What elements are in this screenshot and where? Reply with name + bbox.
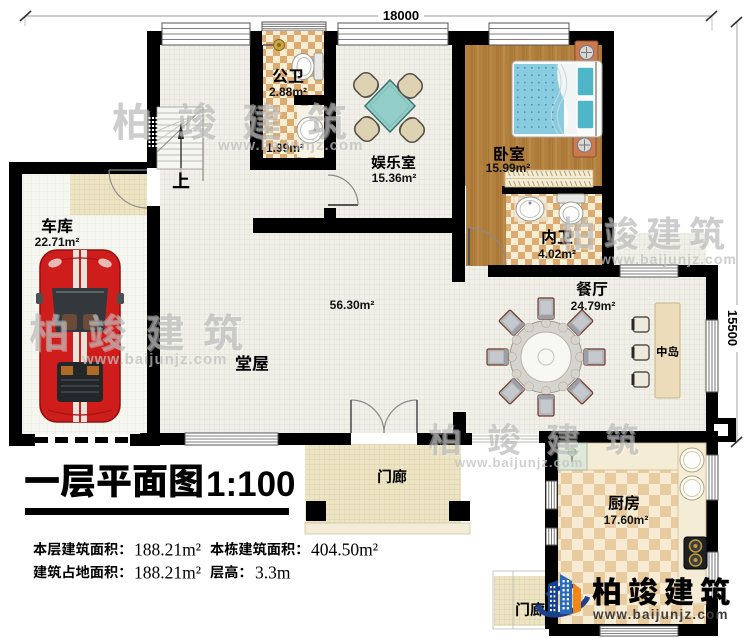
svg-text:188.21m²: 188.21m² — [134, 563, 201, 583]
svg-text:17.60m²: 17.60m² — [604, 513, 649, 527]
svg-text:www.baijunjz.com: www.baijunjz.com — [454, 455, 583, 470]
svg-text:188.21m²: 188.21m² — [134, 540, 201, 560]
svg-text:24.79m²: 24.79m² — [571, 299, 616, 313]
svg-text:22.71m²: 22.71m² — [35, 235, 80, 249]
svg-text:www.baijunjz.com: www.baijunjz.com — [599, 251, 737, 267]
svg-text:15.36m²: 15.36m² — [372, 171, 417, 185]
svg-text:2.88m²: 2.88m² — [269, 85, 307, 99]
svg-text:404.50m²: 404.50m² — [311, 540, 378, 560]
svg-text:www.baijunjz.com: www.baijunjz.com — [81, 351, 227, 368]
svg-text:18000: 18000 — [383, 8, 419, 23]
svg-text:1:100: 1:100 — [206, 465, 296, 504]
svg-text:www.baijunjz.com: www.baijunjz.com — [592, 607, 729, 622]
svg-text:3.3m: 3.3m — [255, 563, 291, 583]
svg-text:15500: 15500 — [725, 310, 740, 346]
svg-text:www.baijunjz.com: www.baijunjz.com — [217, 137, 363, 154]
svg-text:56.30m²: 56.30m² — [330, 298, 375, 312]
svg-text:15.99m²: 15.99m² — [486, 161, 531, 175]
